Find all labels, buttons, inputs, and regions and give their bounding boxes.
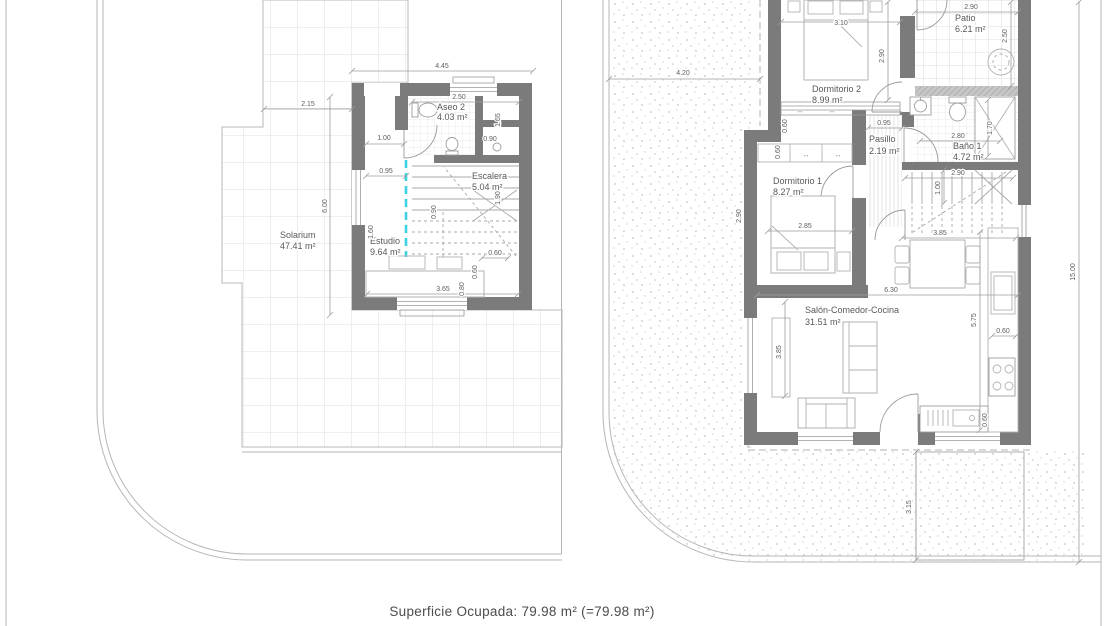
toilet-symbol	[412, 103, 437, 117]
floor-plan-page: Solarium 47.41 m² Aseo 2 4.03 m² Escaler…	[0, 0, 1110, 626]
dim-desk-depth: 0.80	[459, 282, 466, 296]
room-label-dormitorio2: Dormitorio 2	[812, 84, 861, 94]
stove-symbol	[989, 358, 1015, 396]
room-label-escalera: Escalera	[472, 171, 507, 181]
pasillo-floor	[868, 115, 902, 227]
sofa-symbol-small	[798, 398, 855, 428]
dim-estudio-height: 1.60	[368, 225, 375, 239]
dim-site-bottom: 3.15	[906, 500, 913, 514]
interior-wall-stub	[395, 96, 408, 130]
room-label-salon: Salón-Comedor-Cocina	[805, 305, 899, 315]
dim-bano-height: 1.70	[987, 121, 994, 135]
room-area-escalera: 5.04 m²	[472, 182, 503, 192]
window-bottom	[397, 297, 467, 310]
room-area-estudio: 9.64 m²	[370, 247, 401, 257]
dim-site-right: 15.00	[1070, 263, 1077, 281]
dim-dorm2-height: 2.90	[879, 49, 886, 63]
window-salon-left	[798, 432, 853, 445]
room-label-dormitorio1: Dormitorio 1	[773, 176, 822, 186]
dim-stair-height: 1.90	[495, 191, 502, 205]
closet-divider-wall	[475, 96, 483, 163]
dim-top-width: 4.45	[435, 63, 449, 70]
dim-kitchen-depth-b: 0.60	[982, 413, 989, 427]
window-arrow-icon: ↔	[829, 108, 836, 115]
toilet-symbol	[949, 97, 966, 121]
room-label-pasillo: Pasillo	[869, 134, 896, 144]
window-arrow-icon: ↔	[835, 152, 842, 159]
dim-bano-width: 2.80	[951, 133, 965, 140]
window-left	[352, 170, 365, 225]
room-area-dormitorio2: 8.99 m²	[812, 95, 843, 105]
dim-aseo-width: 2.50	[452, 94, 466, 101]
room-area-solarium: 47.41 m²	[280, 241, 316, 251]
dim-door-width: 1.00	[377, 135, 391, 142]
floor-plan-drawing: Solarium 47.41 m² Aseo 2 4.03 m² Escaler…	[0, 0, 1110, 626]
drain-symbol	[493, 143, 501, 151]
dim-dorm1-width: 2.85	[798, 223, 812, 230]
dim-stair-width: 0.90	[431, 205, 438, 219]
room-area-dormitorio1: 8.27 m²	[773, 187, 804, 197]
dim-wardrobe-a: 0.60	[782, 119, 789, 133]
dim-pasillo-width: 0.95	[877, 120, 891, 127]
room-label-aseo2: Aseo 2	[437, 102, 465, 112]
sink-symbol	[910, 97, 931, 115]
dim-stair-depth: 1.00	[935, 181, 942, 195]
dim-060a: 0.60	[488, 250, 502, 257]
dim-dorm2-width: 3.10	[834, 20, 848, 27]
dim-dorm1-height: 2.90	[736, 209, 743, 223]
dim-closet-width: 0.90	[483, 136, 497, 143]
dim-estudio-width: 3.65	[436, 286, 450, 293]
window-arrow-icon: ↔	[803, 152, 810, 159]
dim-salon-width: 6.30	[884, 287, 898, 294]
sofa-symbol-large	[843, 322, 877, 393]
dim-kitchen-height: 5.75	[971, 313, 978, 327]
room-label-patio: Patio	[955, 13, 976, 23]
room-area-patio: 6.21 m²	[955, 24, 986, 34]
dorm1-door-opening	[852, 165, 866, 198]
patio-door-opening	[900, 0, 915, 16]
dim-solarium-offset: 2.15	[301, 101, 315, 108]
entry-opening	[364, 83, 400, 96]
room-label-solarium: Solarium	[280, 230, 316, 240]
dim-site-left: 4.20	[676, 70, 690, 77]
dim-patio-height: 2.50	[1002, 29, 1009, 43]
entrance-opening	[880, 432, 918, 445]
dim-patio-width: 2.90	[964, 4, 978, 11]
window-arrow-icon: ↔	[861, 108, 868, 115]
right-plan: ↔ ↔ ↔ ↔ ↔	[603, 0, 1101, 626]
dim-060b: 0.60	[472, 265, 479, 279]
window-kitchen	[935, 432, 1000, 445]
room-area-aseo2: 4.03 m²	[437, 112, 468, 122]
bidet-symbol	[446, 138, 458, 156]
room-area-pasillo: 2.19 m²	[869, 146, 900, 156]
dim-entry-width: 0.95	[379, 168, 393, 175]
room-area-salon: 31.51 m²	[805, 317, 841, 327]
dim-closet-height: 1.65	[495, 113, 502, 127]
room-label-bano1: Baño 1	[953, 141, 982, 151]
window-salon-side	[744, 318, 757, 393]
dim-salon-height: 3.85	[776, 345, 783, 359]
window-stairs	[1018, 205, 1031, 237]
dim-solarium-height: 6.00	[322, 199, 329, 213]
dim-kitchen-depth-a: 0.60	[996, 328, 1010, 335]
kitchen-sink-symbol	[920, 406, 988, 432]
window-arrow-icon: ↔	[797, 108, 804, 115]
dim-stair-width: 2.90	[951, 170, 965, 177]
room-area-bano1: 4.72 m²	[953, 152, 984, 162]
dim-dining-width: 3.85	[933, 230, 947, 237]
footer-caption: Superficie Ocupada: 79.98 m² (=79.98 m²)	[389, 604, 654, 619]
dim-wardrobe-b: 0.60	[775, 145, 782, 159]
